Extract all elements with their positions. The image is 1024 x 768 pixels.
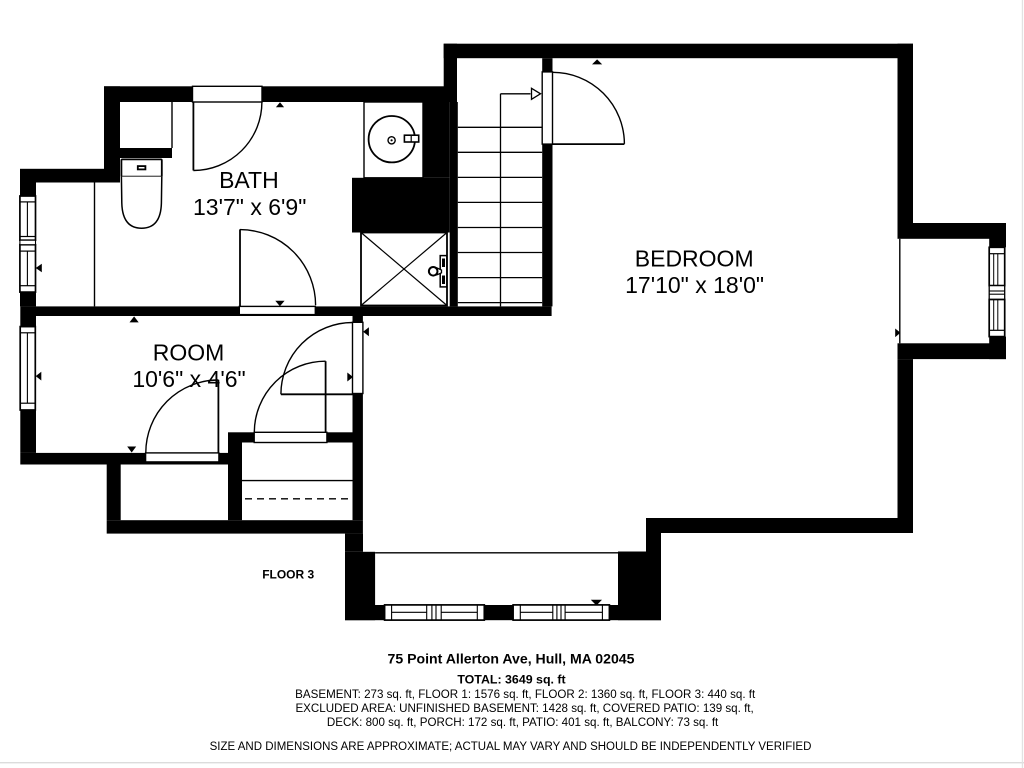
svg-text:ROOM: ROOM (153, 340, 225, 366)
svg-text:BEDROOM: BEDROOM (635, 246, 754, 272)
svg-text:SIZE AND DIMENSIONS ARE APPROX: SIZE AND DIMENSIONS ARE APPROXIMATE; ACT… (210, 741, 812, 753)
svg-text:TOTAL: 3649 sq. ft: TOTAL: 3649 sq. ft (457, 673, 565, 687)
svg-text:BATH: BATH (219, 167, 279, 193)
svg-text:75 Point Allerton Ave, Hull, M: 75 Point Allerton Ave, Hull, MA 02045 (388, 650, 635, 666)
svg-text:BASEMENT: 273 sq. ft, FLOOR 1:: BASEMENT: 273 sq. ft, FLOOR 1: 1576 sq. … (295, 688, 756, 701)
svg-text:10'6" x 4'6": 10'6" x 4'6" (132, 366, 245, 392)
svg-text:17'10" x 18'0": 17'10" x 18'0" (625, 272, 764, 298)
svg-text:EXCLUDED AREA: UNFINISHED BASE: EXCLUDED AREA: UNFINISHED BASEMENT: 1428… (295, 702, 753, 715)
svg-text:13'7" x 6'9": 13'7" x 6'9" (193, 194, 306, 220)
svg-text:DECK: 800 sq. ft, PORCH: 172 s: DECK: 800 sq. ft, PORCH: 172 sq. ft, PAT… (327, 716, 719, 729)
svg-text:FLOOR 3: FLOOR 3 (262, 568, 314, 582)
